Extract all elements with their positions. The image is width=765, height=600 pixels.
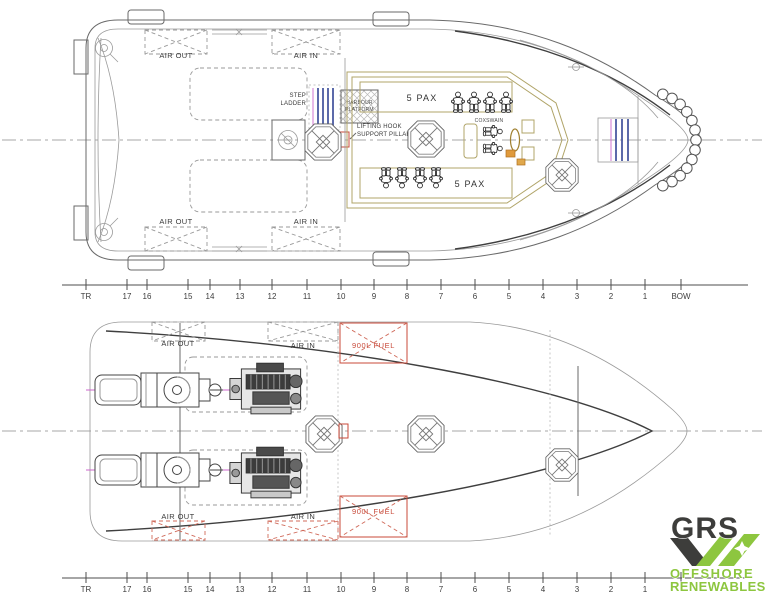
air-out-vent-port: AIR OUT [145,30,207,60]
air-in-label: AIR IN [291,341,316,350]
ruler-label: 12 [268,585,277,594]
stern-bollard-starboard [96,218,119,241]
deck-box-winch [272,120,305,160]
ruler-label: 12 [268,292,277,301]
bow-fender [658,180,669,191]
bow-fender [690,125,701,136]
deck-hatch-projection [306,416,342,452]
air-out-label: AIR OUT [161,339,194,348]
air-out-label: AIR OUT [159,51,192,60]
ruler-label: 4 [541,292,546,301]
waterjet-port [95,373,223,407]
logo-renewables-text: RENEWABLES [670,579,765,594]
ruler-label: 16 [143,292,152,301]
ruler-label: TR [81,292,92,301]
air-in-label: AIR IN [294,51,319,60]
fuel-tank-upper: 900L FUEL [340,323,407,363]
passengers-lower-row [380,168,443,188]
bow-fender [687,115,698,126]
ruler-label: 3 [575,585,580,594]
ruler-label: 16 [143,585,152,594]
vessel-deck-plan-drawing: AIR OUT AIR IN AIR OUT AIR IN [0,0,765,600]
ruler-label: 15 [184,585,193,594]
ruler-label: BOW [671,292,691,301]
ruler-label: 15 [184,292,193,301]
ruler-label: 1 [643,292,648,301]
waterjet-starboard [95,453,223,487]
ruler-label: 11 [303,585,312,594]
deck-hatch [305,124,341,160]
fuel-label-lower: 900L FUEL [352,507,395,516]
compartment-outline-starboard [190,160,307,212]
fuel-label-upper: 900L FUEL [352,341,395,350]
deck-hatch-projection [408,416,444,452]
grs-offshore-renewables-logo: GRS OFFSHORE RENEWABLES [670,512,765,594]
station-ruler-top: TR1716151413121110987654321BOW [62,279,748,301]
helm-seat [464,124,477,158]
step-ladder-label-2: LADDER [280,101,306,107]
bow-fender [690,145,701,156]
ruler-label: 8 [405,585,410,594]
engine-port [230,363,302,414]
ruler-label: 13 [236,292,245,301]
ruler-label: 6 [473,585,478,594]
coxswain-label: COXSWAIN [475,118,504,124]
ruler-label: 14 [206,585,215,594]
ruler-label: 5 [507,292,512,301]
cleat [373,12,409,26]
lifting-hook-label-2: SUPPORT PILLAR [357,132,411,138]
air-in-vent-starboard: AIR IN [272,217,340,251]
ruler-label: 2 [609,585,614,594]
ruler-label: TR [81,585,92,594]
bow-fender [691,135,702,146]
cleat [128,256,164,270]
cleat [128,10,164,24]
ruler-label: 3 [575,292,580,301]
fuel-tank-lower: 900L FUEL [340,496,407,537]
air-out-vent-starboard: AIR OUT [145,217,207,251]
ruler-label: 7 [439,585,444,594]
ruler-label: 17 [123,292,132,301]
step-ladder-label-1: STEP [290,93,306,99]
station-ruler-bottom: TR1716151413121110987654321 [62,572,748,594]
logo-grs-text: GRS [671,512,739,545]
main-deck-plan: AIR OUT AIR IN AIR OUT AIR IN [2,10,762,270]
ruler-label: 5 [507,585,512,594]
stern-bollard-port [96,40,119,63]
air-in-label: AIR IN [291,512,316,521]
deck-hatch [546,159,578,191]
ruler-label: 4 [541,585,546,594]
deck-hatch [408,121,444,157]
step-ladder: STEP LADDER [280,85,340,130]
ruler-label: 1 [643,585,648,594]
control-box [517,159,525,165]
ruler-label: 10 [337,585,346,594]
engine-starboard [230,447,302,498]
air-in-label: AIR IN [294,217,319,226]
pax-label-upper: 5 PAX [407,93,438,103]
console-panel [522,120,534,133]
air-out-label: AIR OUT [159,217,192,226]
ruler-label: 14 [206,292,215,301]
pax-label-lower: 5 PAX [455,179,486,189]
deck-hatch-projection [546,449,578,481]
console-panel [522,147,534,160]
ruler-label: 17 [123,585,132,594]
throttle-control [506,150,515,157]
ruler-label: 11 [303,292,312,301]
lifting-hook-support-pillar: LIFTING HOOK SUPPORT PILLAR [340,124,411,147]
ruler-label: 6 [473,292,478,301]
ruler-label: 7 [439,292,444,301]
cleat [373,252,409,266]
gunwale-track [212,29,267,252]
ruler-label: 13 [236,585,245,594]
ruler-label: 2 [609,292,614,301]
passengers-upper-row [452,92,513,112]
ruler-label: 9 [372,292,377,301]
ruler-label: 10 [337,292,346,301]
ladder-rungs [318,88,333,126]
lifting-hook-label-1: LIFTING HOOK [357,124,402,130]
ruler-label: 9 [372,585,377,594]
helm-station: COXSWAIN [464,118,534,165]
ruler-label: 8 [405,292,410,301]
engine-room-plan: AIR OUT AIR IN AIR OUT AIR IN 900L FU [2,322,762,541]
air-out-label: AIR OUT [161,512,194,521]
air-in-vent-port: AIR IN [272,30,340,60]
